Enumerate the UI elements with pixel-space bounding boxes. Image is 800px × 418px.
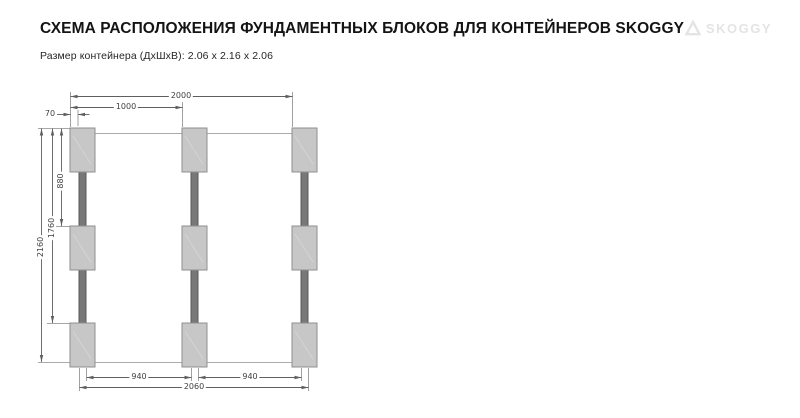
dim-vertical-1760: 1760 xyxy=(48,216,56,240)
foundation-layout-diagram xyxy=(0,0,800,418)
dim-bottom-gap-right: 940 xyxy=(240,373,259,381)
dim-top-overall: 2000 xyxy=(169,92,193,100)
dim-vertical-2160: 2160 xyxy=(37,235,45,259)
dim-top-half: 1000 xyxy=(114,103,138,111)
dim-bottom-overall: 2060 xyxy=(182,383,206,391)
dim-edge-offset: 70 xyxy=(43,110,57,118)
dim-vertical-880: 880 xyxy=(57,171,65,190)
dim-bottom-gap-left: 940 xyxy=(129,373,148,381)
